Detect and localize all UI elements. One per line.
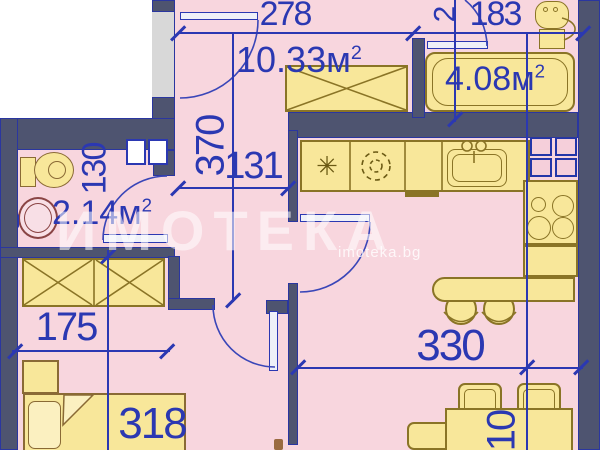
sink-basin-inner — [24, 203, 52, 233]
dim-bath-large-width: 183 — [458, 0, 532, 28]
stove-burner — [531, 197, 546, 212]
bedroom-door-arc — [213, 305, 275, 367]
wall — [168, 298, 215, 310]
bedroom-door-leaf — [269, 311, 278, 371]
dim-bath-large-depth: 2 — [434, 0, 456, 34]
dim-bath-small-width: 130 — [76, 138, 112, 200]
wall — [288, 112, 578, 138]
toilet-dot — [543, 7, 548, 12]
toilet-dot — [553, 7, 558, 12]
entry-niche — [152, 12, 175, 97]
room-label-bathroom-large: 4.08м2 — [445, 62, 545, 96]
dim-living-width: 330 — [402, 324, 498, 368]
outside-area — [0, 0, 152, 118]
dim-bed-length: 318 — [116, 400, 188, 448]
wall — [288, 130, 298, 222]
stove-burner — [527, 216, 551, 240]
toilet-icon — [535, 1, 569, 29]
dim-table-width: 10 — [481, 411, 521, 450]
room-label-bathroom-small: 2.14м2 — [52, 196, 152, 230]
bathroom-large-door-leaf — [427, 41, 488, 49]
shaft-window-icon — [530, 137, 552, 177]
plant — [274, 439, 283, 450]
wall — [578, 0, 600, 450]
dining-chair-inner — [464, 389, 496, 410]
watermark-url: imoteka.bg — [338, 244, 421, 261]
bed-pillow — [28, 401, 61, 449]
stove-burner — [552, 217, 574, 239]
living-door-arc — [300, 222, 370, 292]
fridge-icon: ✳ — [312, 151, 342, 181]
oven-handle — [405, 192, 439, 197]
kitchen-counter-side — [523, 245, 578, 277]
dim-hall-width: 131 — [220, 146, 286, 186]
dimension-line — [12, 350, 170, 352]
washing-machine-icon — [148, 139, 168, 165]
bar-counter — [432, 277, 575, 302]
bedroom-wardrobe — [22, 258, 165, 307]
dim-entry-width: 278 — [250, 0, 320, 28]
dimension-line — [107, 250, 109, 450]
dining-chair — [407, 422, 447, 450]
shaft-cell — [530, 137, 552, 156]
entry-door-leaf — [180, 12, 258, 20]
shaft-cell — [555, 158, 577, 177]
washing-machine-icon — [126, 139, 146, 165]
dim-wardrobe-width: 175 — [32, 306, 100, 348]
kitchen-sink-inner — [452, 154, 502, 182]
shaft-cell — [555, 137, 577, 156]
wall — [0, 118, 18, 450]
wall — [152, 0, 175, 12]
toilet-bowl-inner — [48, 161, 66, 179]
bathroom-small-door-leaf — [103, 234, 168, 243]
shaft-cell — [530, 158, 552, 177]
living-door-leaf — [300, 214, 370, 222]
room-label-hallway: 10.33м2 — [236, 42, 362, 78]
wall — [288, 283, 298, 445]
wall — [0, 247, 175, 258]
stove-burner — [552, 195, 574, 217]
wall — [412, 38, 425, 118]
shaft-window-icon — [555, 137, 577, 177]
floorplan-canvas: ✳ — [0, 0, 600, 450]
nightstand — [22, 360, 59, 394]
dimension-line — [178, 32, 583, 34]
